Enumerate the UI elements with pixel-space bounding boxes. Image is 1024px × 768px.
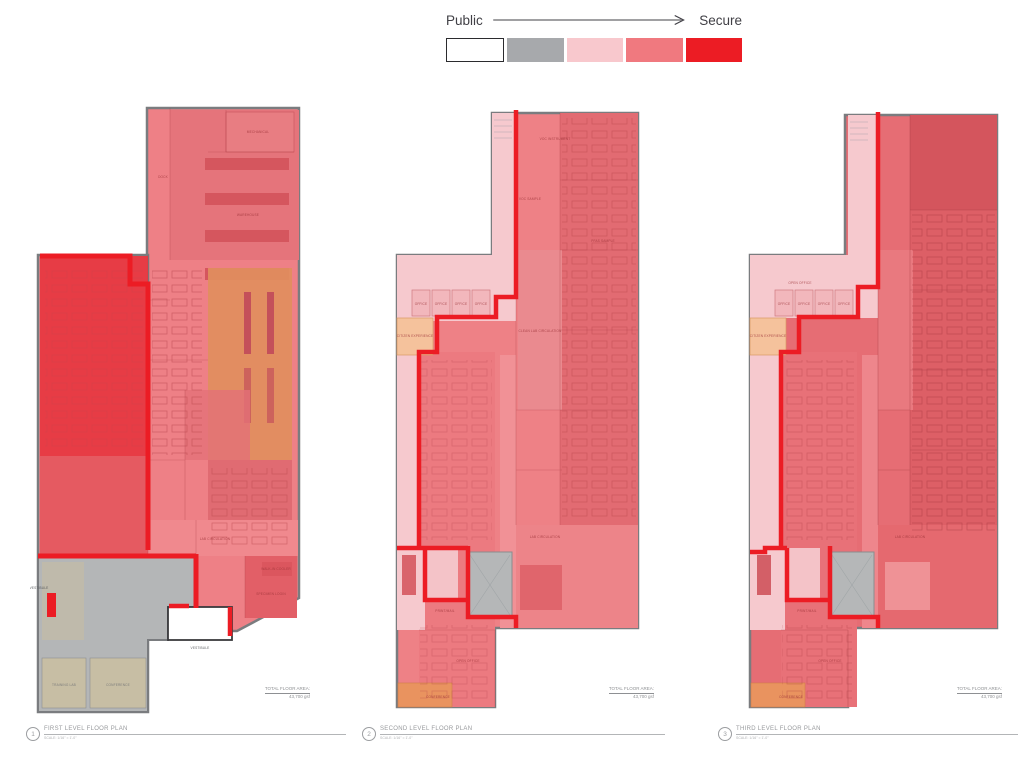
room-label: SPECIMEN LOGIN — [256, 592, 286, 596]
room-label: LAB CIRCULATION — [895, 535, 926, 539]
room-label: OFFICE — [778, 302, 791, 306]
security-zoning-floor-plan-sheet: Public Secure — [0, 0, 1024, 768]
plan3-west-pink-strip — [750, 355, 781, 548]
room-label: LAB CIRCULATION — [530, 535, 561, 539]
room-label: CITIZEN EXPERIENCE — [397, 334, 434, 338]
room-label: TRAINING LAB — [52, 683, 76, 687]
plan2-title-block: 2 SECOND LEVEL FLOOR PLAN SCALE: 1/16" =… — [362, 726, 665, 741]
plan-title: FIRST LEVEL FLOOR PLAN — [44, 726, 346, 735]
plan1-secure-lab-benches — [45, 265, 143, 450]
area-note-label: TOTAL FLOOR AREA: — [957, 686, 1002, 694]
plan2-small-secure-room — [402, 555, 416, 595]
room-label: LAB CIRCULATION — [200, 537, 231, 541]
plan1-vestibule — [168, 607, 232, 640]
plan3-restroom-core — [787, 548, 820, 600]
legend-labels: Public Secure — [446, 10, 742, 30]
swatch-semi-public-gray — [507, 38, 563, 62]
swatch-secure-high-red — [686, 38, 742, 62]
security-gradient-legend: Public Secure — [446, 10, 742, 62]
plan2-lab-benches — [562, 118, 636, 518]
plan1-title-block: 1 FIRST LEVEL FLOOR PLAN SCALE: 1/16" = … — [26, 726, 346, 741]
second-level-floor-plan-drawing: VOC INSTRUMENT VOC SAMPLE PFAS SAMPLE OF… — [390, 100, 650, 715]
plan-scale: SCALE: 1/16" = 1'-0" — [380, 736, 665, 740]
plan3-area-note: TOTAL FLOOR AREA: 43,700 gsf — [930, 686, 1002, 700]
plan2-public-corridor — [492, 113, 516, 255]
plan-number-badge: 3 — [718, 727, 732, 741]
first-level-floor-plan-drawing: MECHANICAL DOCK WAREHOUSE LAB CIRCULATIO… — [30, 100, 320, 720]
plan2-restroom-core — [425, 548, 458, 600]
swatch-semi-secure-light-pink — [567, 38, 623, 62]
legend-secure-label: Secure — [699, 13, 742, 28]
plan3-center-lab-block — [878, 250, 913, 410]
plan3-title-block: 3 THIRD LEVEL FLOOR PLAN SCALE: 1/16" = … — [718, 726, 1018, 741]
plan-scale: SCALE: 1/16" = 1'-0" — [44, 736, 346, 740]
plan2-south-lab-room — [520, 565, 562, 610]
plan2-office-desks — [420, 360, 492, 540]
plan1-secure-vestibule-marker — [47, 593, 56, 617]
plan1-secure-zone-lower — [40, 456, 148, 556]
third-level-floor-plan-drawing: OPEN OFFICE OFFICE OFFICE OFFICE OFFICE … — [745, 100, 1005, 715]
room-label: OFFICE — [818, 302, 831, 306]
area-note-value: 43,700 gsf — [289, 694, 310, 699]
plan-number-badge: 1 — [26, 727, 40, 741]
plan3-south-clean-room — [885, 562, 930, 610]
plan1-area-note: TOTAL FLOOR AREA: 43,700 gsf — [238, 686, 310, 700]
room-label: OFFICE — [798, 302, 811, 306]
plan3-small-secure-room — [757, 555, 771, 595]
plan2-west-pink-strip — [397, 355, 419, 548]
room-label: OPEN OFFICE — [456, 659, 479, 663]
room-label: VOC SAMPLE — [519, 197, 541, 201]
room-label: OFFICE — [435, 302, 448, 306]
legend-public-label: Public — [446, 13, 483, 28]
room-label: MECHANICAL — [247, 130, 269, 134]
area-note-value: 43,700 gsf — [981, 694, 1002, 699]
room-label: OPEN OFFICE — [818, 659, 841, 663]
room-label: WAREHOUSE — [237, 213, 259, 217]
plan1-lab-benches — [152, 270, 202, 455]
plan3-office-desks — [782, 360, 854, 540]
room-label: CITIZEN EXPERIENCE — [750, 334, 787, 338]
room-label: CONFERENCE — [426, 695, 450, 699]
plan2-area-note: TOTAL FLOOR AREA: 43,700 gsf — [582, 686, 654, 700]
plan-scale: SCALE: 1/16" = 1'-0" — [736, 736, 1018, 740]
room-label: OFFICE — [838, 302, 851, 306]
plan-title: THIRD LEVEL FLOOR PLAN — [736, 726, 1018, 735]
room-label: OFFICE — [415, 302, 428, 306]
room-label: VESTIBULE — [191, 646, 210, 650]
room-label: VESTIBULE — [30, 586, 48, 590]
area-note-value: 43,700 gsf — [633, 694, 654, 699]
room-label: CLEAN LAB CIRCULATION — [519, 329, 562, 333]
room-label: PRINT/MAIL — [435, 609, 454, 613]
plan-title: SECOND LEVEL FLOOR PLAN — [380, 726, 665, 735]
swatch-secure-medium-red — [626, 38, 682, 62]
room-label: PRINT/MAIL — [797, 609, 816, 613]
plan3-northeast-dark-labs — [910, 115, 997, 210]
room-label: OPEN OFFICE — [788, 281, 811, 285]
room-label: OFFICE — [475, 302, 488, 306]
legend-swatches — [446, 38, 742, 62]
room-label: OFFICE — [455, 302, 468, 306]
room-label: WALK-IN COOLER — [261, 567, 291, 571]
room-label: CONFERENCE — [106, 683, 130, 687]
room-label: DOCK — [158, 175, 169, 179]
public-to-secure-arrow-icon — [491, 14, 691, 26]
plan-number-badge: 2 — [362, 727, 376, 741]
area-note-label: TOTAL FLOOR AREA: — [609, 686, 654, 694]
swatch-public-white — [446, 38, 504, 62]
room-label: CONFERENCE — [779, 695, 803, 699]
plan1-lab-benches-2 — [210, 468, 288, 546]
room-label: PFAS SAMPLE — [591, 239, 615, 243]
room-label: VOC INSTRUMENT — [540, 137, 571, 141]
area-note-label: TOTAL FLOOR AREA: — [265, 686, 310, 694]
plan3-lab-benches — [912, 212, 995, 532]
